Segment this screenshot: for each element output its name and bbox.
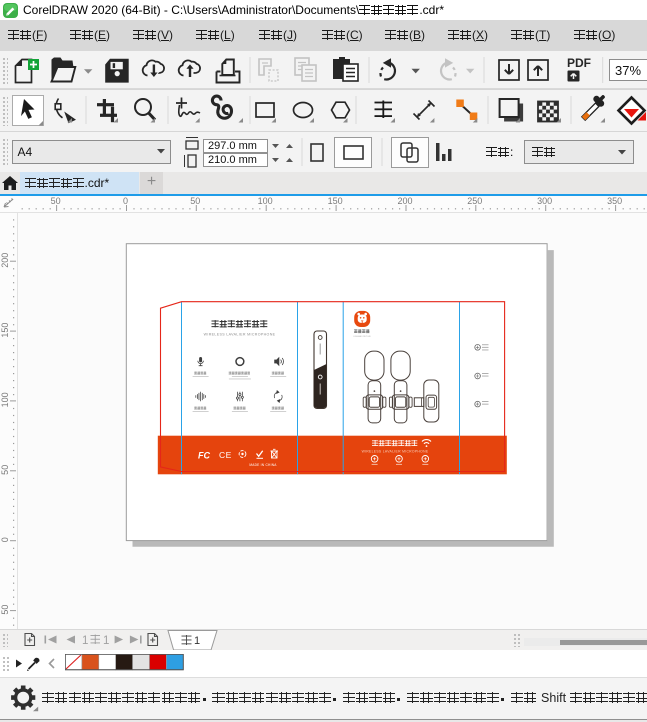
svg-text:1: 1 <box>82 635 88 647</box>
svg-text:50: 50 <box>0 464 10 474</box>
svg-text:WIRELESS LAVALIER MICROPHONE: WIRELESS LAVALIER MICROPHONE <box>362 449 429 453</box>
svg-text:1: 1 <box>103 635 109 647</box>
svg-text:WIRELESS LAVALIER MICROPHONE: WIRELESS LAVALIER MICROPHONE <box>204 332 276 336</box>
svg-text:1: 1 <box>194 635 200 647</box>
svg-text:PDF: PDF <box>567 56 591 70</box>
svg-text:50: 50 <box>0 604 10 614</box>
svg-text:0: 0 <box>0 537 10 542</box>
svg-text:MADE IN CHINA: MADE IN CHINA <box>249 462 277 466</box>
svg-text:0: 0 <box>123 196 128 206</box>
svg-text:250: 250 <box>467 196 482 206</box>
svg-text:100: 100 <box>0 392 10 407</box>
svg-text:CE: CE <box>219 450 232 460</box>
svg-text:350: 350 <box>607 196 622 206</box>
svg-text:150: 150 <box>0 322 10 337</box>
svg-text:200: 200 <box>0 252 10 267</box>
svg-text:100: 100 <box>258 196 273 206</box>
svg-text:50: 50 <box>190 196 200 206</box>
svg-text:LINGMAO RUIYUE: LINGMAO RUIYUE <box>353 334 371 337</box>
svg-text:50: 50 <box>51 196 61 206</box>
svg-text:300: 300 <box>537 196 552 206</box>
svg-text:200: 200 <box>397 196 412 206</box>
svg-text:FC: FC <box>198 450 210 460</box>
svg-text:150: 150 <box>328 196 343 206</box>
